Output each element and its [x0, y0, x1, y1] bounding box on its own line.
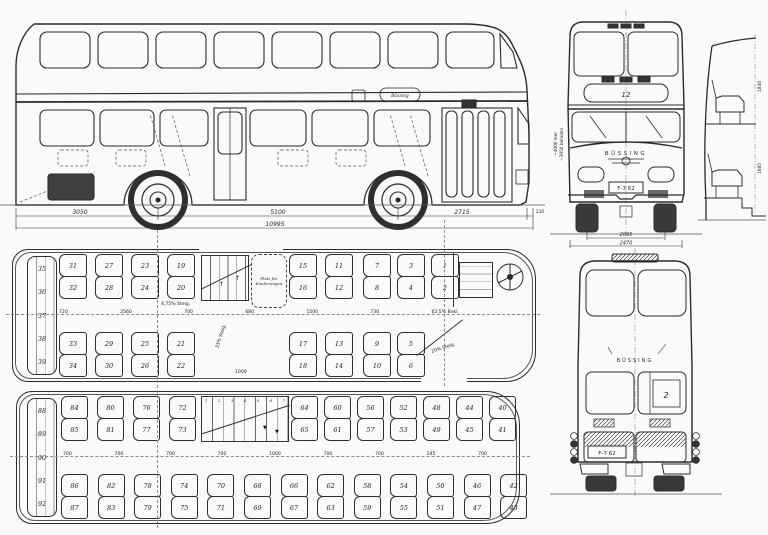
seat-pair: 3334: [59, 333, 87, 377]
seat-number: 9: [363, 332, 391, 355]
seat-number: 66: [281, 474, 308, 497]
upper-top-front-row: 6465606156575253484944454041: [291, 397, 516, 441]
seat-number: 3: [397, 254, 425, 277]
seat-number: 53: [390, 418, 417, 441]
seat-number: 19: [167, 254, 195, 277]
seat-pair: 1314: [325, 333, 353, 377]
headlight-left: [578, 167, 604, 182]
side-elevation-view: 3050 5100 2715 130 10995 Büssing: [0, 4, 545, 240]
seat-number: 82: [98, 474, 125, 497]
seat-number: 1: [431, 254, 459, 277]
seat-number: 30: [95, 354, 123, 377]
upper-bottom-row: 8687828378797475707168696667626358595455…: [61, 475, 527, 519]
stair-step-number: 6: [270, 398, 272, 403]
section-view: 1840 1685: [698, 6, 766, 238]
seat-pair: 4445: [456, 397, 483, 441]
dim-upper-deck-height: 1840: [757, 81, 763, 92]
seat-number: 57: [357, 418, 384, 441]
dim-wheelbase: 5100: [270, 209, 285, 216]
seat-pair: 4041: [489, 397, 516, 441]
seat-pair: 7475: [171, 475, 198, 519]
rear-upper-window-right: [638, 270, 686, 316]
seat-number: 83: [98, 496, 125, 519]
stair-step-number: 7: [283, 398, 285, 403]
seat-pair: 3132: [59, 255, 87, 299]
lower-top-rear-row: 3132272823241920: [59, 255, 195, 299]
seat-number: 55: [390, 496, 417, 519]
seat-number: 46: [464, 474, 491, 497]
mud-flap-left: [580, 464, 608, 474]
route-number: 2: [663, 391, 668, 400]
seat-number: 13: [325, 332, 353, 355]
lower-front-windscreen: [518, 108, 529, 144]
seat-pair: 2526: [131, 333, 159, 377]
seat-number: 33: [59, 332, 87, 355]
seat-number: 21: [167, 332, 195, 355]
lower-bottom-rear-row: 3334293025262122: [59, 333, 195, 377]
seat-pair: 8283: [98, 475, 125, 519]
seat-pair: 2728: [95, 255, 123, 299]
seat-number: 49: [423, 418, 450, 441]
cab-divider: [453, 253, 454, 307]
seat-number: 35: [28, 257, 56, 280]
seat-number: 68: [244, 474, 271, 497]
rear-license-plate: F-7 62: [598, 451, 615, 457]
seat-number: 80: [97, 396, 124, 419]
front-door: [442, 108, 512, 202]
seat-number: 28: [95, 276, 123, 299]
upper-window-row: [40, 32, 494, 68]
seat-number: 85: [61, 418, 88, 441]
dim-front-overhang: 2715: [454, 209, 469, 216]
middle-door: [214, 108, 246, 200]
seat-number: 25: [131, 332, 159, 355]
seat-pair: 12: [431, 255, 459, 299]
seat-number: 91: [28, 469, 56, 492]
seat-number: 16: [289, 276, 317, 299]
rear-upper-window-left: [586, 270, 634, 316]
seat-number: 27: [95, 254, 123, 277]
seat-pair: 8687: [61, 475, 88, 519]
blueprint-canvas: 3050 5100 2715 130 10995 Büssing: [0, 0, 768, 535]
lower-deck-plan: 3536373839 3132272823241920 15161112 783…: [12, 249, 536, 382]
seat-pair: 5455: [390, 475, 417, 519]
stair-step-number: 1: [205, 398, 207, 403]
seat-number: 47: [464, 496, 491, 519]
front-axle-reference-line: [444, 220, 445, 386]
seat-number: 59: [354, 496, 381, 519]
height-label-laden: ~3950 beladen: [559, 128, 565, 161]
stair-step-number: 2: [218, 398, 220, 403]
seat-number: 12: [325, 276, 353, 299]
seat-number: 52: [390, 396, 417, 419]
seat-pair: 5657: [357, 397, 384, 441]
seat-number: 14: [325, 354, 353, 377]
seat-number: 41: [489, 418, 516, 441]
wiper-right: [646, 116, 662, 138]
engine-compartment: [459, 262, 493, 298]
rear-wheel-left: [586, 476, 616, 491]
seat-number: 11: [325, 254, 353, 277]
seat-number: 20: [167, 276, 195, 299]
seat-number: 56: [357, 396, 384, 419]
seat-pair: 4849: [423, 397, 450, 441]
destination-sign-text: 12: [622, 91, 631, 99]
lower-bottom-mid-row: 17181314: [289, 333, 353, 377]
seat-number: 61: [324, 418, 351, 441]
front-wheel-left: [576, 204, 598, 232]
seat-number: 88: [28, 399, 56, 422]
seat-number: 18: [289, 354, 317, 377]
engine-grille: [48, 174, 94, 200]
seat-number: 39: [28, 351, 56, 374]
rear-axle-reference-line: [157, 230, 158, 528]
stair-step-number: 3: [231, 398, 233, 403]
seat-number: 44: [456, 396, 483, 419]
seat-number: 60: [324, 396, 351, 419]
staircase-upper: 1234567: [201, 396, 289, 442]
front-indicator: [516, 170, 528, 184]
stair-gradient-note: 33% Steig.: [215, 324, 227, 349]
front-wheel: [363, 165, 433, 235]
seat-pair: 6667: [281, 475, 308, 519]
side-badge: Büssing: [391, 93, 409, 99]
seat-pair: 7071: [207, 475, 234, 519]
headlight-right: [648, 167, 674, 182]
dim-bumper: 130: [536, 209, 545, 215]
seat-pair: 5051: [427, 475, 454, 519]
seat-number: 72: [169, 396, 196, 419]
seat-pair: 4243: [500, 475, 527, 519]
lower-top-mid-row: 15161112: [289, 255, 353, 299]
seat-pair: 6061: [324, 397, 351, 441]
upper-windscreen-left: [574, 32, 624, 76]
front-wheel-right: [654, 204, 676, 232]
wiper-left: [590, 116, 606, 138]
seat-pair: 1516: [289, 255, 317, 299]
stair-arrow: ▼: [275, 430, 279, 435]
stair-step-numbers: 1234567: [205, 398, 285, 403]
seat-number: 24: [131, 276, 159, 299]
seat-number: 92: [28, 493, 56, 516]
seat-number: 70: [207, 474, 234, 497]
seat-number: 43: [500, 496, 527, 519]
seat-pair: 6263: [317, 475, 344, 519]
seat-number: 45: [456, 418, 483, 441]
lower-seat-profile: [708, 154, 742, 198]
seat-number: 67: [281, 496, 308, 519]
seat-number: 63: [317, 496, 344, 519]
dim-track: 2095: [620, 232, 633, 238]
seat-number: 15: [289, 254, 317, 277]
rear-bench-lower: 3536373839: [27, 256, 57, 375]
seat-number: 48: [423, 396, 450, 419]
seat-number: 51: [427, 496, 454, 519]
seat-pair: 8485: [61, 397, 88, 441]
seat-number: 26: [131, 354, 159, 377]
stair-step-number: 4: [244, 398, 246, 403]
seat-number: 2: [431, 276, 459, 299]
seat-pair: 5859: [354, 475, 381, 519]
height-label-empty: ~4000 leer: [553, 132, 559, 156]
seat-number: 50: [427, 474, 454, 497]
ramp-gradient-note: 4,75% Steig.: [161, 302, 190, 307]
upper-seat-profile: [712, 80, 744, 124]
seat-number: 23: [131, 254, 159, 277]
rear-view: BÜSSING 2 F-7 62: [550, 246, 722, 508]
seat-number: 6: [397, 354, 425, 377]
seat-number: 17: [289, 332, 317, 355]
seat-pair: 34: [397, 255, 425, 299]
seat-pair: 1112: [325, 255, 353, 299]
seat-number: 58: [354, 474, 381, 497]
upper-deck-plan: 8889909192 8485808176777273 646560615657…: [16, 391, 520, 524]
seat-pair: 2324: [131, 255, 159, 299]
mud-flap-right: [662, 464, 690, 474]
front-brand: BÜSSING: [605, 150, 647, 157]
upper-top-rear-row: 8485808176777273: [61, 397, 196, 441]
dim-1000: 1000: [235, 370, 247, 375]
seat-pair: 910: [363, 333, 391, 377]
seat-number: 76: [133, 396, 160, 419]
stair-arrow: ↑: [219, 282, 224, 288]
seat-number: 42: [500, 474, 527, 497]
seat-pair: 78: [363, 255, 391, 299]
seat-pair: 2930: [95, 333, 123, 377]
rear-brand: BÜSSING: [617, 357, 654, 364]
seat-pair: 5253: [390, 397, 417, 441]
seat-number: 81: [97, 418, 124, 441]
upper-windscreen-right: [628, 32, 678, 76]
seat-pair: 1920: [167, 255, 195, 299]
seat-pair: 7677: [133, 397, 160, 441]
pram-area: Platz für Kinderwagen: [251, 254, 287, 308]
seat-pair: 2122: [167, 333, 195, 377]
front-license-plate: F-7 62: [617, 186, 634, 192]
seat-number: 89: [28, 422, 56, 445]
seat-number: 62: [317, 474, 344, 497]
seat-number: 37: [28, 304, 56, 327]
seat-number: 86: [61, 474, 88, 497]
seat-number: 31: [59, 254, 87, 277]
seat-number: 84: [61, 396, 88, 419]
seat-pair: 8081: [97, 397, 124, 441]
stair-arrow: ↑: [235, 276, 240, 282]
seat-number: 64: [291, 396, 318, 419]
front-view: 12 BÜSSING F-7 62 2095 2470 ~4000 leer ~…: [550, 6, 702, 250]
stair-arrow: ▼: [263, 426, 267, 431]
seat-number: 73: [169, 418, 196, 441]
stair-step-number: 5: [257, 398, 259, 403]
seat-number: 65: [291, 418, 318, 441]
seat-number: 38: [28, 327, 56, 350]
seat-number: 7: [363, 254, 391, 277]
seat-pair: 6465: [291, 397, 318, 441]
seat-number: 22: [167, 354, 195, 377]
dim-lower-deck-height: 1685: [757, 163, 763, 174]
seat-number: 10: [363, 354, 391, 377]
seat-pair: 7273: [169, 397, 196, 441]
seat-number: 8: [363, 276, 391, 299]
seat-number: 34: [59, 354, 87, 377]
rear-lower-window-right: [638, 372, 686, 414]
rear-bench-upper: 8889909192: [27, 398, 57, 517]
seat-number: 69: [244, 496, 271, 519]
seat-number: 75: [171, 496, 198, 519]
dim-rear-overhang: 3050: [72, 209, 87, 216]
seat-number: 74: [171, 474, 198, 497]
seat-pair: 6869: [244, 475, 271, 519]
seat-number: 54: [390, 474, 417, 497]
dim-total-length: 10995: [265, 221, 284, 228]
lower-plan-centerline: [6, 314, 540, 315]
seat-pair: 56: [397, 333, 425, 377]
seat-pair: 1718: [289, 333, 317, 377]
rear-wheel: [123, 165, 193, 235]
seat-number: 4: [397, 276, 425, 299]
upper-plan-centerline: [10, 456, 530, 457]
seat-number: 77: [133, 418, 160, 441]
seat-number: 29: [95, 332, 123, 355]
seat-number: 32: [59, 276, 87, 299]
seat-number: 71: [207, 496, 234, 519]
steering-wheel: [493, 260, 527, 294]
lower-window-row: [40, 110, 430, 146]
rear-door-opening: [199, 247, 283, 251]
entry-steps: [742, 198, 766, 216]
rear-lower-window-left: [586, 372, 634, 414]
seat-number: 36: [28, 280, 56, 303]
seat-number: 90: [28, 446, 56, 469]
seat-number: 40: [489, 396, 516, 419]
seat-pair: 4647: [464, 475, 491, 519]
seat-number: 87: [61, 496, 88, 519]
rear-wheel-right: [654, 476, 684, 491]
marker-light: [462, 100, 476, 107]
staircase-lower: [201, 255, 249, 301]
